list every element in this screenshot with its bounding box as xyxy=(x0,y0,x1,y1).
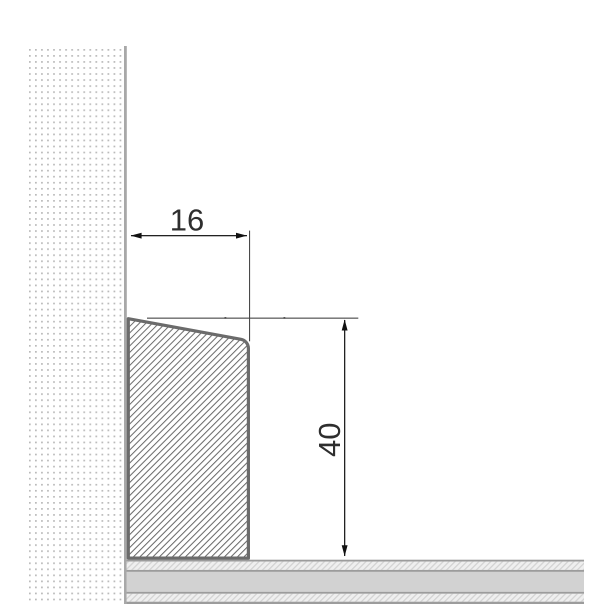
svg-text:40: 40 xyxy=(312,423,347,457)
svg-text:16: 16 xyxy=(170,202,204,237)
